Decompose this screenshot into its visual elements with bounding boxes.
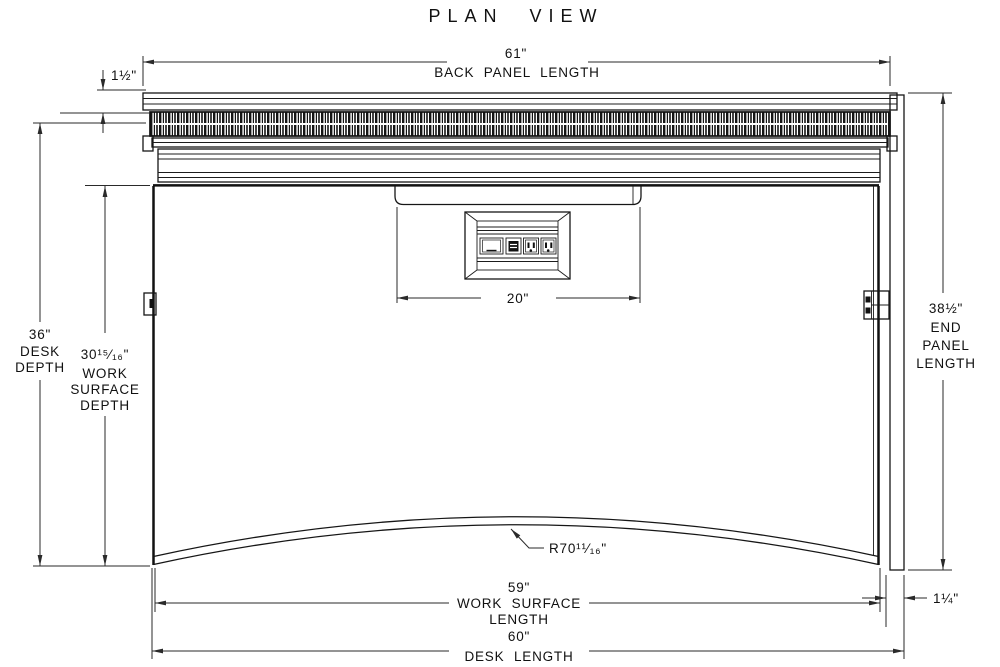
dim-value: 1½" [111,68,137,83]
dim-label: DEPTH [15,360,65,375]
dim-work-surface-length: 59" WORK SURFACE LENGTH [155,568,880,627]
power-outlet-module [524,238,539,254]
power-outlet-module [541,238,556,254]
dim-value: 61" [505,46,527,61]
end-panel [890,95,904,570]
dim-label: WORK SURFACE [457,596,581,611]
cable-tray-outline [395,186,641,205]
dim-end-panel-length: 38½" END PANEL LENGTH [908,93,976,570]
front-edge-outer-curve [154,525,879,565]
dim-label: DESK LENGTH [464,649,573,664]
dim-desk-depth: 36" DESK DEPTH [15,123,150,566]
dim-label: BACK PANEL LENGTH [434,65,599,80]
power-data-module [465,212,570,279]
dim-label: LENGTH [916,356,976,371]
back-panel-top-cap [143,93,897,110]
leader-line [511,529,544,548]
cable-tray-recess [395,186,641,205]
dim-label: WORK [82,366,127,381]
dim-label: LENGTH [489,612,549,627]
right-mounting-bracket [864,291,889,319]
dim-label: PANEL [922,338,969,353]
dim-end-panel-offset: 1¼" [862,575,959,627]
dim-label: DESK [20,344,60,359]
switch-module [480,238,503,254]
dim-value: R70¹¹⁄₁₆" [549,541,607,556]
drawing-title: PLAN VIEW [428,6,603,26]
dim-label: SURFACE [70,382,139,397]
dim-back-panel-length: 61" BACK PANEL LENGTH [143,46,890,86]
dim-label: DEPTH [80,398,130,413]
dim-work-surface-depth: 30¹⁵⁄₁₆" WORK SURFACE DEPTH [70,186,150,567]
dim-value: 60" [508,629,530,644]
dim-value: 1¼" [933,591,959,606]
dim-value: 30¹⁵⁄₁₆" [81,347,130,362]
dim-front-radius-callout: R70¹¹⁄₁₆" [511,529,607,556]
dim-value: 36" [29,327,51,342]
dim-grommet-width: 20" [397,207,640,306]
desk-plan-view-drawing: PLAN VIEW [0,0,1000,667]
dim-value: 59" [508,580,530,595]
dim-value: 38½" [929,301,963,316]
back-panel-assembly [143,93,897,182]
drawing-canvas: PLAN VIEW [0,0,1000,667]
dim-label: END [931,320,962,335]
front-edge-inner-curve [154,517,879,557]
dim-value: 20" [507,291,529,306]
data-jack-module [506,238,521,254]
